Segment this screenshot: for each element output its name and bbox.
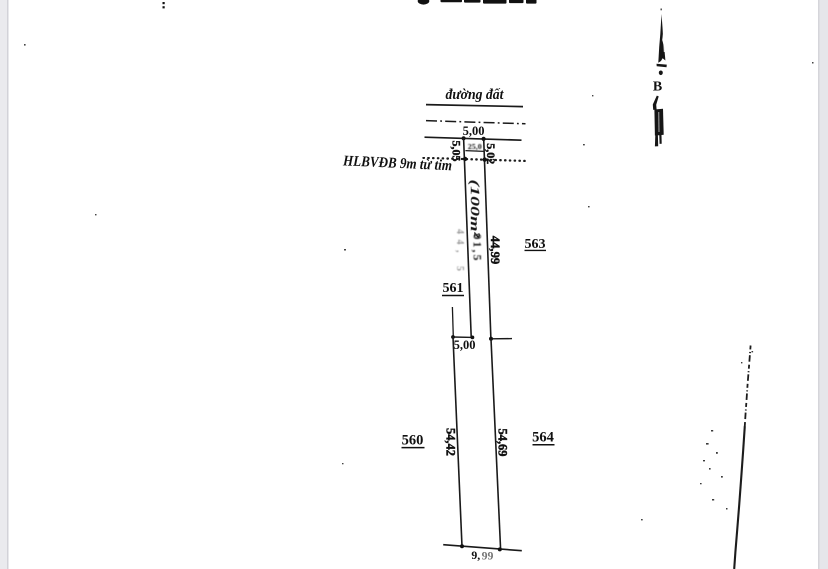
svg-text:54,69: 54,69	[496, 429, 510, 457]
svg-text:01,5: 01,5	[471, 234, 485, 261]
svg-text:B: B	[653, 80, 662, 95]
svg-text:5,00: 5,00	[454, 338, 476, 352]
svg-text:9,: 9,	[471, 548, 480, 562]
svg-text:99: 99	[482, 548, 494, 562]
svg-text:đường đất: đường đất	[446, 87, 505, 103]
svg-text:564: 564	[532, 430, 554, 446]
svg-text:5,00: 5,00	[463, 124, 485, 138]
svg-text:44,99: 44,99	[488, 236, 503, 265]
svg-text:563: 563	[525, 237, 546, 252]
svg-text:54,42: 54,42	[444, 428, 458, 456]
svg-text:25,0: 25,0	[468, 143, 483, 151]
svg-text:560: 560	[402, 433, 424, 449]
svg-text:561: 561	[443, 281, 464, 296]
svg-text:(100m²: (100m²	[468, 180, 483, 240]
